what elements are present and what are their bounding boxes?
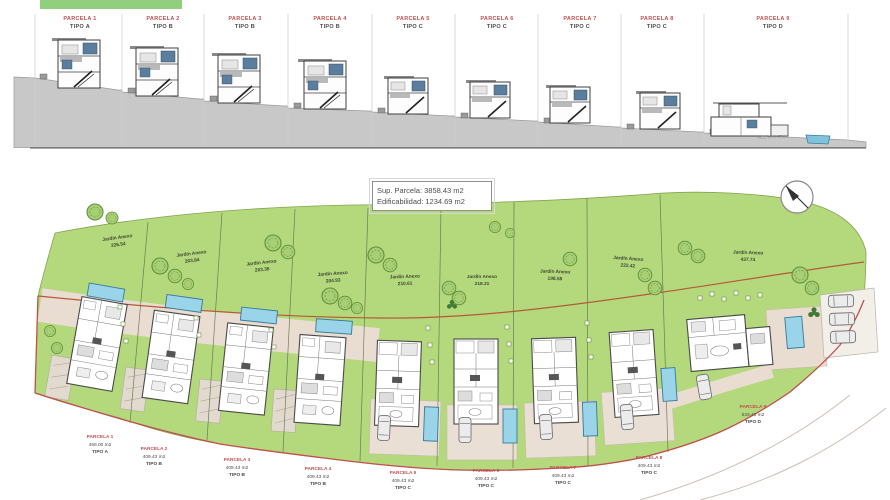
section-house-9 xyxy=(711,103,788,136)
parked-car-1 xyxy=(828,295,853,308)
north-compass-icon xyxy=(781,181,813,213)
house-5 xyxy=(375,340,422,426)
section-house-3 xyxy=(212,53,260,103)
top-green-strip xyxy=(40,0,182,9)
site-plan-drawing: PARCELA 1TIPO A PARCELA 2TIPO B PARCELA … xyxy=(0,0,890,500)
house-4 xyxy=(294,335,346,426)
parked-car-2 xyxy=(829,313,854,326)
parked-car-3 xyxy=(830,331,855,344)
house-3 xyxy=(219,323,274,415)
area-info-box: Sup. Parcela: 3858.43 m2 Edificabilidad:… xyxy=(372,181,492,211)
edificabilidad-line: Edificabilidad: 1234.69 m2 xyxy=(377,196,487,207)
section-house-6 xyxy=(466,80,510,118)
car-6 xyxy=(459,418,471,443)
house-6 xyxy=(454,339,498,424)
section-house-2 xyxy=(130,46,178,96)
section-house-1 xyxy=(52,38,100,88)
section-house-7 xyxy=(546,85,590,123)
house-7 xyxy=(532,337,579,423)
section-house-5 xyxy=(384,76,428,114)
section-pool xyxy=(806,135,830,144)
car-7 xyxy=(539,414,552,440)
car-8 xyxy=(620,404,634,430)
section-house-4 xyxy=(298,59,346,109)
sup-parcela-line: Sup. Parcela: 3858.43 m2 xyxy=(377,185,487,196)
elevations-drawing xyxy=(0,0,890,160)
house-8 xyxy=(609,330,659,418)
section-house-8 xyxy=(636,91,680,129)
car-5 xyxy=(377,415,390,441)
